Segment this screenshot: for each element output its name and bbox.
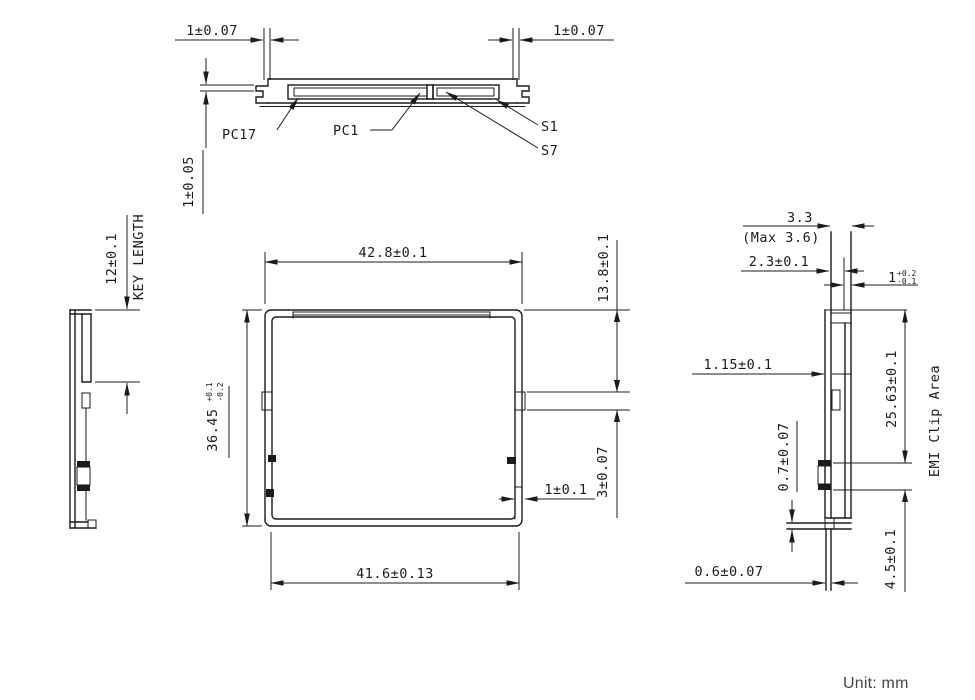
- dim-height-tol-minus: -0.2: [216, 382, 225, 401]
- dim-thickness: 3.3 (Max 3.6): [742, 210, 874, 246]
- dim-top-right-1: 1±0.07: [488, 23, 614, 80]
- dim-top-right-text: 1±0.07: [553, 23, 605, 39]
- dim-tab-thickness: 0.7±0.07: [776, 421, 797, 552]
- dim-conn-offset: 13.8±0.1: [596, 233, 620, 392]
- card-right-step: [515, 487, 522, 519]
- dim-top-left-text: 1±0.07: [186, 23, 238, 39]
- left-view-key-rail: [82, 314, 91, 382]
- dim-tail-thickness: 0.6±0.07: [685, 564, 858, 583]
- dim-width-top: 42.8±0.1: [265, 245, 522, 304]
- dim-top-left-1: 1±0.07: [175, 23, 299, 80]
- left-view-body: [70, 310, 75, 528]
- left-view-notch: [82, 393, 90, 408]
- left-view-bottom-cap: [70, 522, 96, 528]
- dim-thickness-text: 3.3: [787, 210, 813, 226]
- s-socket-slot-inner: [437, 88, 494, 96]
- dim-tail-text: 0.6±0.07: [694, 564, 763, 580]
- right-view-clip-tab-top: [818, 460, 831, 466]
- left-view-clip-tab-bottom: [77, 485, 90, 491]
- dim-pcb-offset: 1.15±0.1: [692, 357, 851, 374]
- dim-key-length: 12±0.1 KEY LENGTH: [95, 214, 147, 414]
- dim-tab-text: 0.7±0.07: [776, 422, 792, 491]
- left-side-view: 12±0.1 KEY LENGTH: [70, 214, 147, 528]
- dim-key-ext: [95, 310, 140, 382]
- card-outer-outline: [265, 310, 522, 526]
- dim-lip-ext: [200, 85, 254, 91]
- cf-card-mechanical-drawing: PC17 PC1 S1 S7 1±0.07 1±0.07 1±0.05: [0, 0, 975, 700]
- card-left-mark-upper: [268, 455, 276, 462]
- right-view-pcb-tail: [826, 529, 831, 590]
- emi-clip-area-label: EMI Clip Area: [927, 365, 943, 477]
- dim-top-left-ext: [264, 28, 270, 80]
- dim-lip-text: 1±0.05: [181, 156, 197, 208]
- dim-height: 36.45 +0.1 -0.2: [205, 310, 262, 526]
- card-left-notch: [262, 392, 272, 410]
- s1-label: S1: [541, 119, 558, 135]
- pc1-label: PC1: [333, 123, 359, 139]
- right-side-view: 3.3 (Max 3.6) 2.3±0.1 1 +0.2 -0.1 1.15±0…: [685, 210, 943, 592]
- dim-height-value: 36.45: [205, 408, 221, 451]
- dim-width-top-text: 42.8±0.1: [358, 245, 427, 261]
- dim-step: 1±0.1: [499, 482, 595, 499]
- card-right-notch: [515, 392, 525, 410]
- right-view-top-cap: [831, 313, 851, 323]
- s7-label: S7: [541, 143, 558, 159]
- card-right-mark: [507, 457, 516, 464]
- dim-sub-thickness: 2.3±0.1: [741, 254, 864, 271]
- right-view-clip-tab-bottom: [818, 484, 831, 490]
- left-view-clip-tab-top: [77, 461, 90, 467]
- pc-socket-slot: [288, 85, 427, 99]
- connector-ext-lines: [524, 310, 630, 410]
- dim-thickness-max-text: (Max 3.6): [742, 230, 820, 246]
- dim-height-tol-plus: +0.1: [205, 382, 214, 401]
- pc17-label: PC17: [222, 127, 257, 143]
- left-view-top-cap: [70, 310, 91, 314]
- unit-note: Unit: mm: [843, 675, 909, 692]
- dim-width-bottom-text: 41.6±0.13: [356, 566, 434, 582]
- dim-top-right-ext: [513, 28, 519, 80]
- slot-divider: [427, 85, 433, 99]
- section-right-end: [517, 79, 529, 103]
- dim-lip-value: 1: [888, 270, 897, 286]
- section-left-end: [256, 79, 268, 103]
- key-length-caption: KEY LENGTH: [131, 214, 147, 300]
- dim-conn-height-text: 3±0.07: [595, 446, 611, 498]
- drawing-canvas: PC17 PC1 S1 S7 1±0.07 1±0.07 1±0.05: [0, 0, 975, 700]
- s-socket-slot: [433, 85, 499, 99]
- s7-leader-line: [446, 92, 538, 148]
- dim-emi-text: 25.63±0.1: [884, 350, 900, 428]
- left-view-foot: [88, 520, 96, 528]
- dim-bottom-clip: 4.5±0.1: [883, 490, 908, 592]
- dim-bottom-clip-text: 4.5±0.1: [883, 529, 899, 589]
- dim-lip-tol: 1 +0.2 -0.1: [824, 269, 918, 286]
- right-view-notch: [832, 390, 840, 410]
- left-view-clip-window: [77, 467, 90, 485]
- card-inner-outline: [272, 317, 515, 519]
- dim-lip-tol-minus: -0.1: [897, 277, 916, 286]
- dim-key-text: 12±0.1: [104, 233, 120, 285]
- dim-pcb-text: 1.15±0.1: [703, 357, 772, 373]
- card-left-mark-lower: [266, 489, 274, 497]
- dim-sub-text: 2.3±0.1: [749, 254, 809, 270]
- pc-socket-slot-inner: [294, 88, 427, 96]
- s1-leader-line: [497, 100, 538, 125]
- connector-section-view: PC17 PC1 S1 S7 1±0.07 1±0.07 1±0.05: [175, 23, 614, 214]
- right-view-bottom-cap: [787, 523, 851, 529]
- dim-step-text: 1±0.1: [544, 482, 587, 498]
- dim-emi-span: 25.63±0.1: [884, 310, 905, 463]
- front-view: 42.8±0.1 36.45 +0.1 -0.2 41.6±0.13 13.8±…: [205, 233, 630, 590]
- dim-conn-offset-text: 13.8±0.1: [596, 233, 612, 302]
- dim-width-bottom: 41.6±0.13: [271, 532, 519, 590]
- dim-conn-height: 3±0.07: [595, 410, 620, 518]
